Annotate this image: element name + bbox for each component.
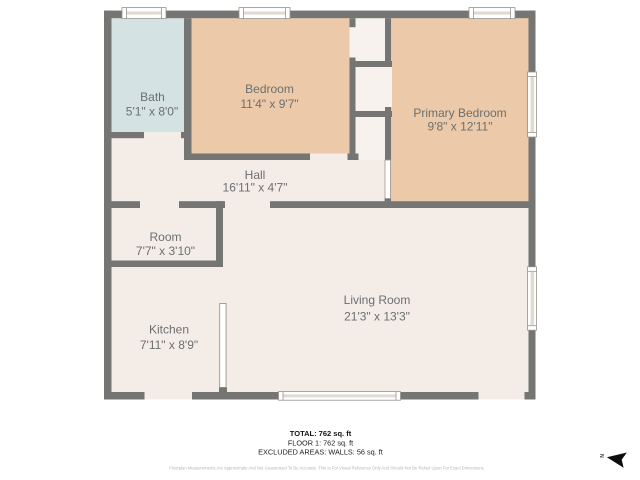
svg-text:N: N: [598, 454, 604, 458]
svg-text:Bedroom: Bedroom: [245, 82, 294, 96]
svg-text:9'8" x 12'11": 9'8" x 12'11": [428, 120, 493, 134]
svg-text:7'7" x 3'10": 7'7" x 3'10": [136, 244, 195, 258]
svg-text:7'11" x 8'9": 7'11" x 8'9": [140, 338, 198, 352]
svg-text:EXCLUDED AREAS: WALLS: 56 sq.: EXCLUDED AREAS: WALLS: 56 sq. ft: [258, 448, 383, 457]
svg-text:11'4" x 9'7": 11'4" x 9'7": [240, 97, 298, 111]
svg-text:Kitchen: Kitchen: [149, 323, 189, 337]
svg-text:5'1" x 8'0": 5'1" x 8'0": [126, 105, 178, 119]
svg-text:Living Room: Living Room: [344, 293, 411, 307]
svg-text:16'11" x 4'7": 16'11" x 4'7": [223, 181, 288, 195]
svg-text:Room: Room: [149, 230, 181, 244]
svg-text:Primary Bedroom: Primary Bedroom: [413, 106, 506, 120]
svg-text:TOTAL: 762 sq. ft: TOTAL: 762 sq. ft: [290, 429, 352, 438]
svg-text:21'3" x 13'3": 21'3" x 13'3": [344, 310, 410, 324]
svg-text:Bath: Bath: [140, 90, 165, 104]
svg-text:FLOOR 1: 762 sq. ft: FLOOR 1: 762 sq. ft: [288, 438, 353, 447]
svg-text:Floorplan Measurements Are App: Floorplan Measurements Are Approximate A…: [169, 465, 485, 470]
